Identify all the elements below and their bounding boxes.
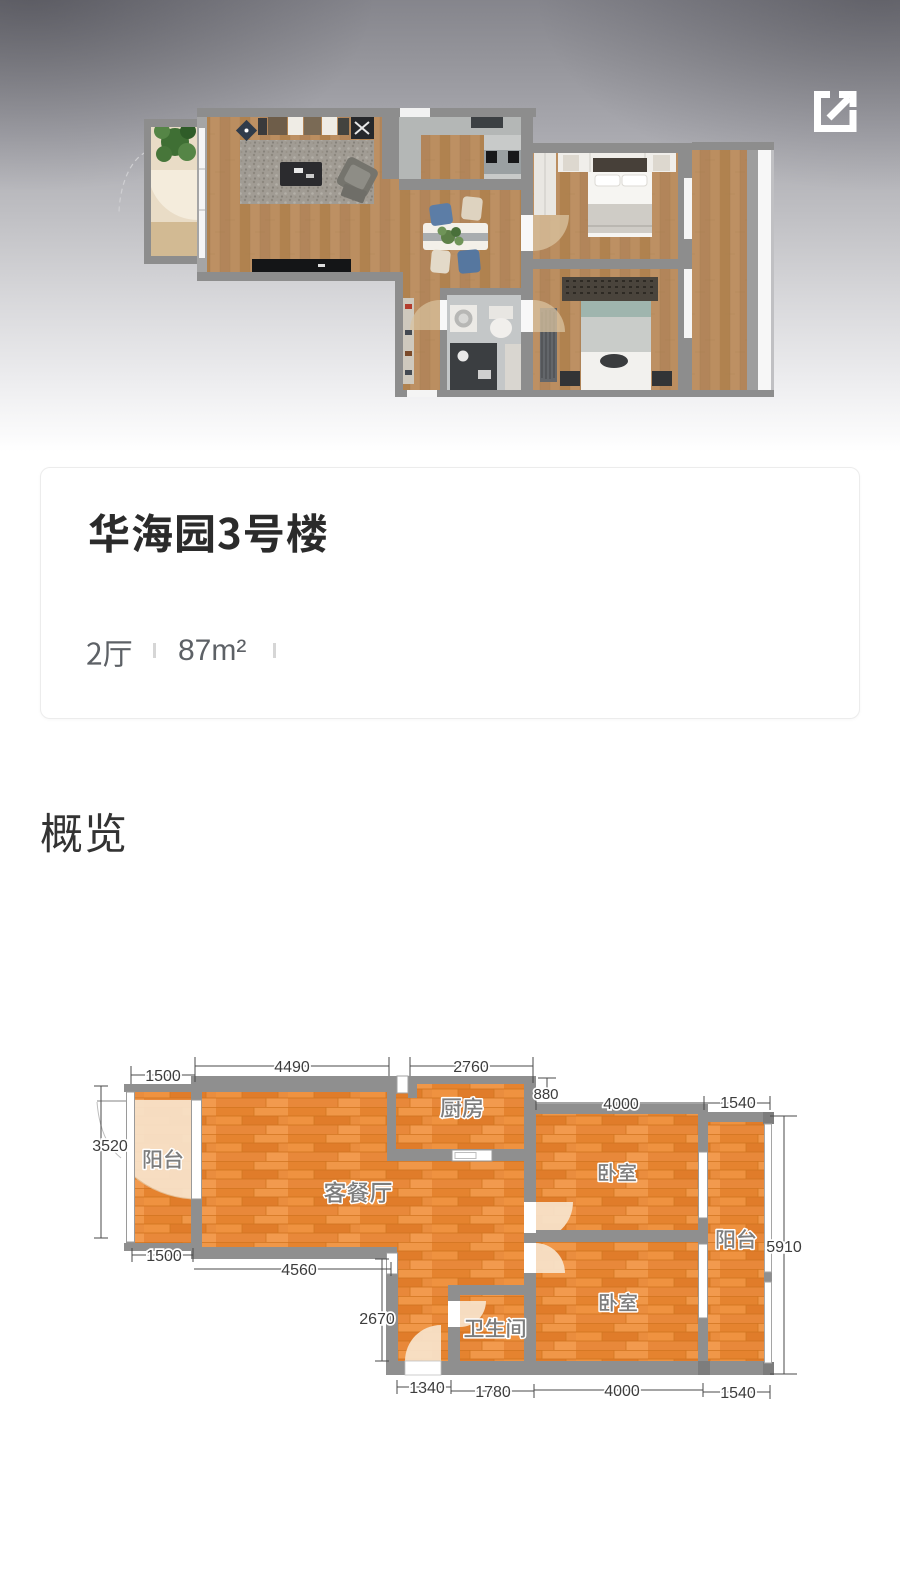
svg-text:4000: 4000 bbox=[604, 1383, 640, 1400]
svg-text:1540: 1540 bbox=[720, 1095, 756, 1112]
svg-text:4490: 4490 bbox=[274, 1059, 310, 1076]
svg-text:3520: 3520 bbox=[92, 1138, 128, 1155]
svg-text:5910: 5910 bbox=[766, 1239, 802, 1256]
svg-text:4560: 4560 bbox=[281, 1262, 317, 1279]
svg-text:2670: 2670 bbox=[359, 1311, 395, 1328]
svg-text:1500: 1500 bbox=[145, 1068, 181, 1085]
svg-text:1500: 1500 bbox=[146, 1248, 182, 1265]
svg-text:1540: 1540 bbox=[720, 1385, 756, 1402]
svg-text:2760: 2760 bbox=[453, 1059, 489, 1076]
svg-text:1780: 1780 bbox=[475, 1384, 511, 1401]
svg-text:1340: 1340 bbox=[409, 1380, 445, 1397]
svg-text:4000: 4000 bbox=[603, 1096, 639, 1113]
svg-text:880: 880 bbox=[533, 1086, 558, 1103]
